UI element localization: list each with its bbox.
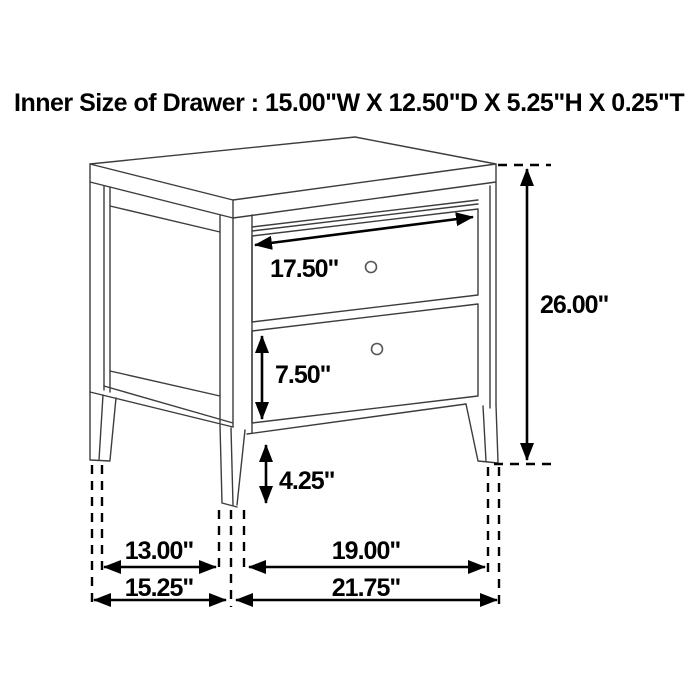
page-title: Inner Size of Drawer : 15.00"W X 12.50"D… [14, 89, 684, 117]
label-side-overall-depth: 15.25" [125, 574, 194, 602]
side-recessed-panel [110, 206, 220, 396]
label-front-inner-width: 19.00" [332, 537, 401, 565]
dimension-labels: 17.50" 26.00" 7.50" 4.25" 13.00" 19.00" … [125, 255, 609, 602]
front-top-rail-beading [252, 200, 478, 231]
front-right-leg [466, 404, 498, 463]
top-drawer-knob [366, 262, 377, 273]
right-corner-post [490, 182, 496, 408]
back-left-leg [90, 392, 116, 461]
dimension-diagram: Inner Size of Drawer : 15.00"W X 12.50"D… [0, 0, 700, 700]
nightstand-drawing [90, 137, 498, 507]
side-back-stile [90, 182, 110, 392]
label-lower-drawer-height: 7.50" [275, 361, 331, 389]
arrow-drawer-width [255, 217, 473, 245]
label-leg-height: 4.25" [279, 467, 335, 495]
label-side-inner-depth: 13.00" [125, 537, 194, 565]
front-left-leg [220, 425, 245, 507]
label-front-overall-width: 21.75" [332, 574, 401, 602]
bottom-drawer-knob [372, 344, 383, 355]
label-overall-height: 26.00" [540, 291, 609, 319]
label-drawer-width: 17.50" [270, 255, 339, 283]
nightstand-diagram-canvas: Inner Size of Drawer : 15.00"W X 12.50"D… [0, 0, 700, 700]
side-bottom-rail [90, 386, 233, 427]
front-corner-post [220, 215, 252, 433]
